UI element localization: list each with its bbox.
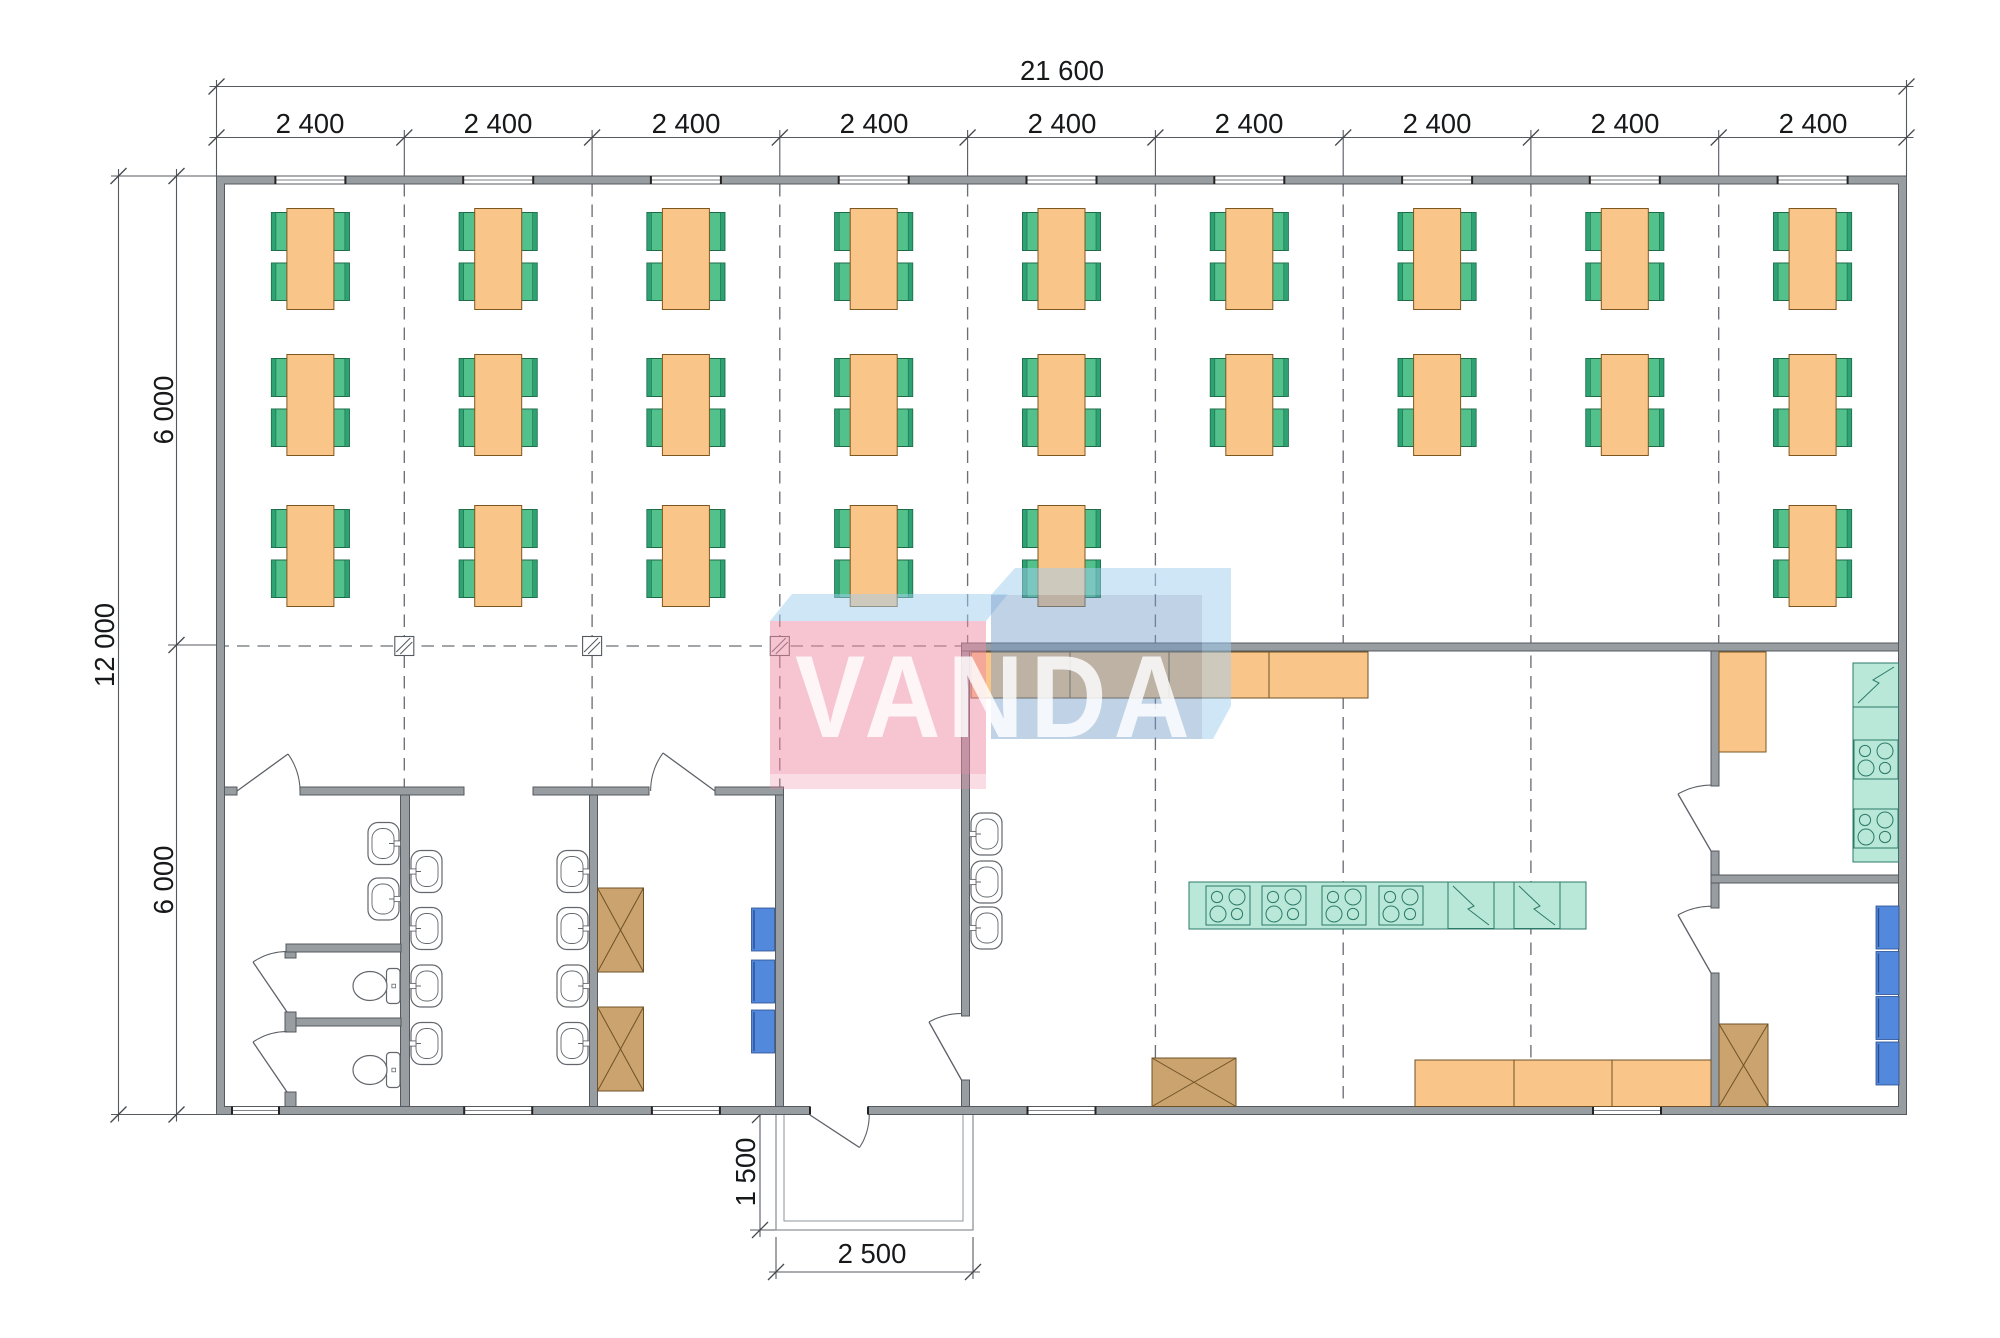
svg-text:21 600: 21 600 — [1020, 55, 1104, 86]
svg-text:2 400: 2 400 — [1403, 108, 1472, 139]
svg-text:2 400: 2 400 — [1028, 108, 1097, 139]
svg-text:1 500: 1 500 — [730, 1138, 761, 1207]
svg-text:6 000: 6 000 — [148, 846, 179, 915]
svg-text:12 000: 12 000 — [89, 603, 120, 687]
svg-text:VANDA: VANDA — [795, 631, 1197, 762]
svg-text:6 000: 6 000 — [148, 376, 179, 445]
svg-text:2 400: 2 400 — [652, 108, 721, 139]
svg-text:2 400: 2 400 — [1215, 108, 1284, 139]
svg-text:2 400: 2 400 — [276, 108, 345, 139]
svg-text:2 500: 2 500 — [838, 1238, 907, 1269]
svg-text:2 400: 2 400 — [840, 108, 909, 139]
svg-text:2 400: 2 400 — [464, 108, 533, 139]
svg-text:2 400: 2 400 — [1591, 108, 1660, 139]
svg-text:2 400: 2 400 — [1779, 108, 1848, 139]
